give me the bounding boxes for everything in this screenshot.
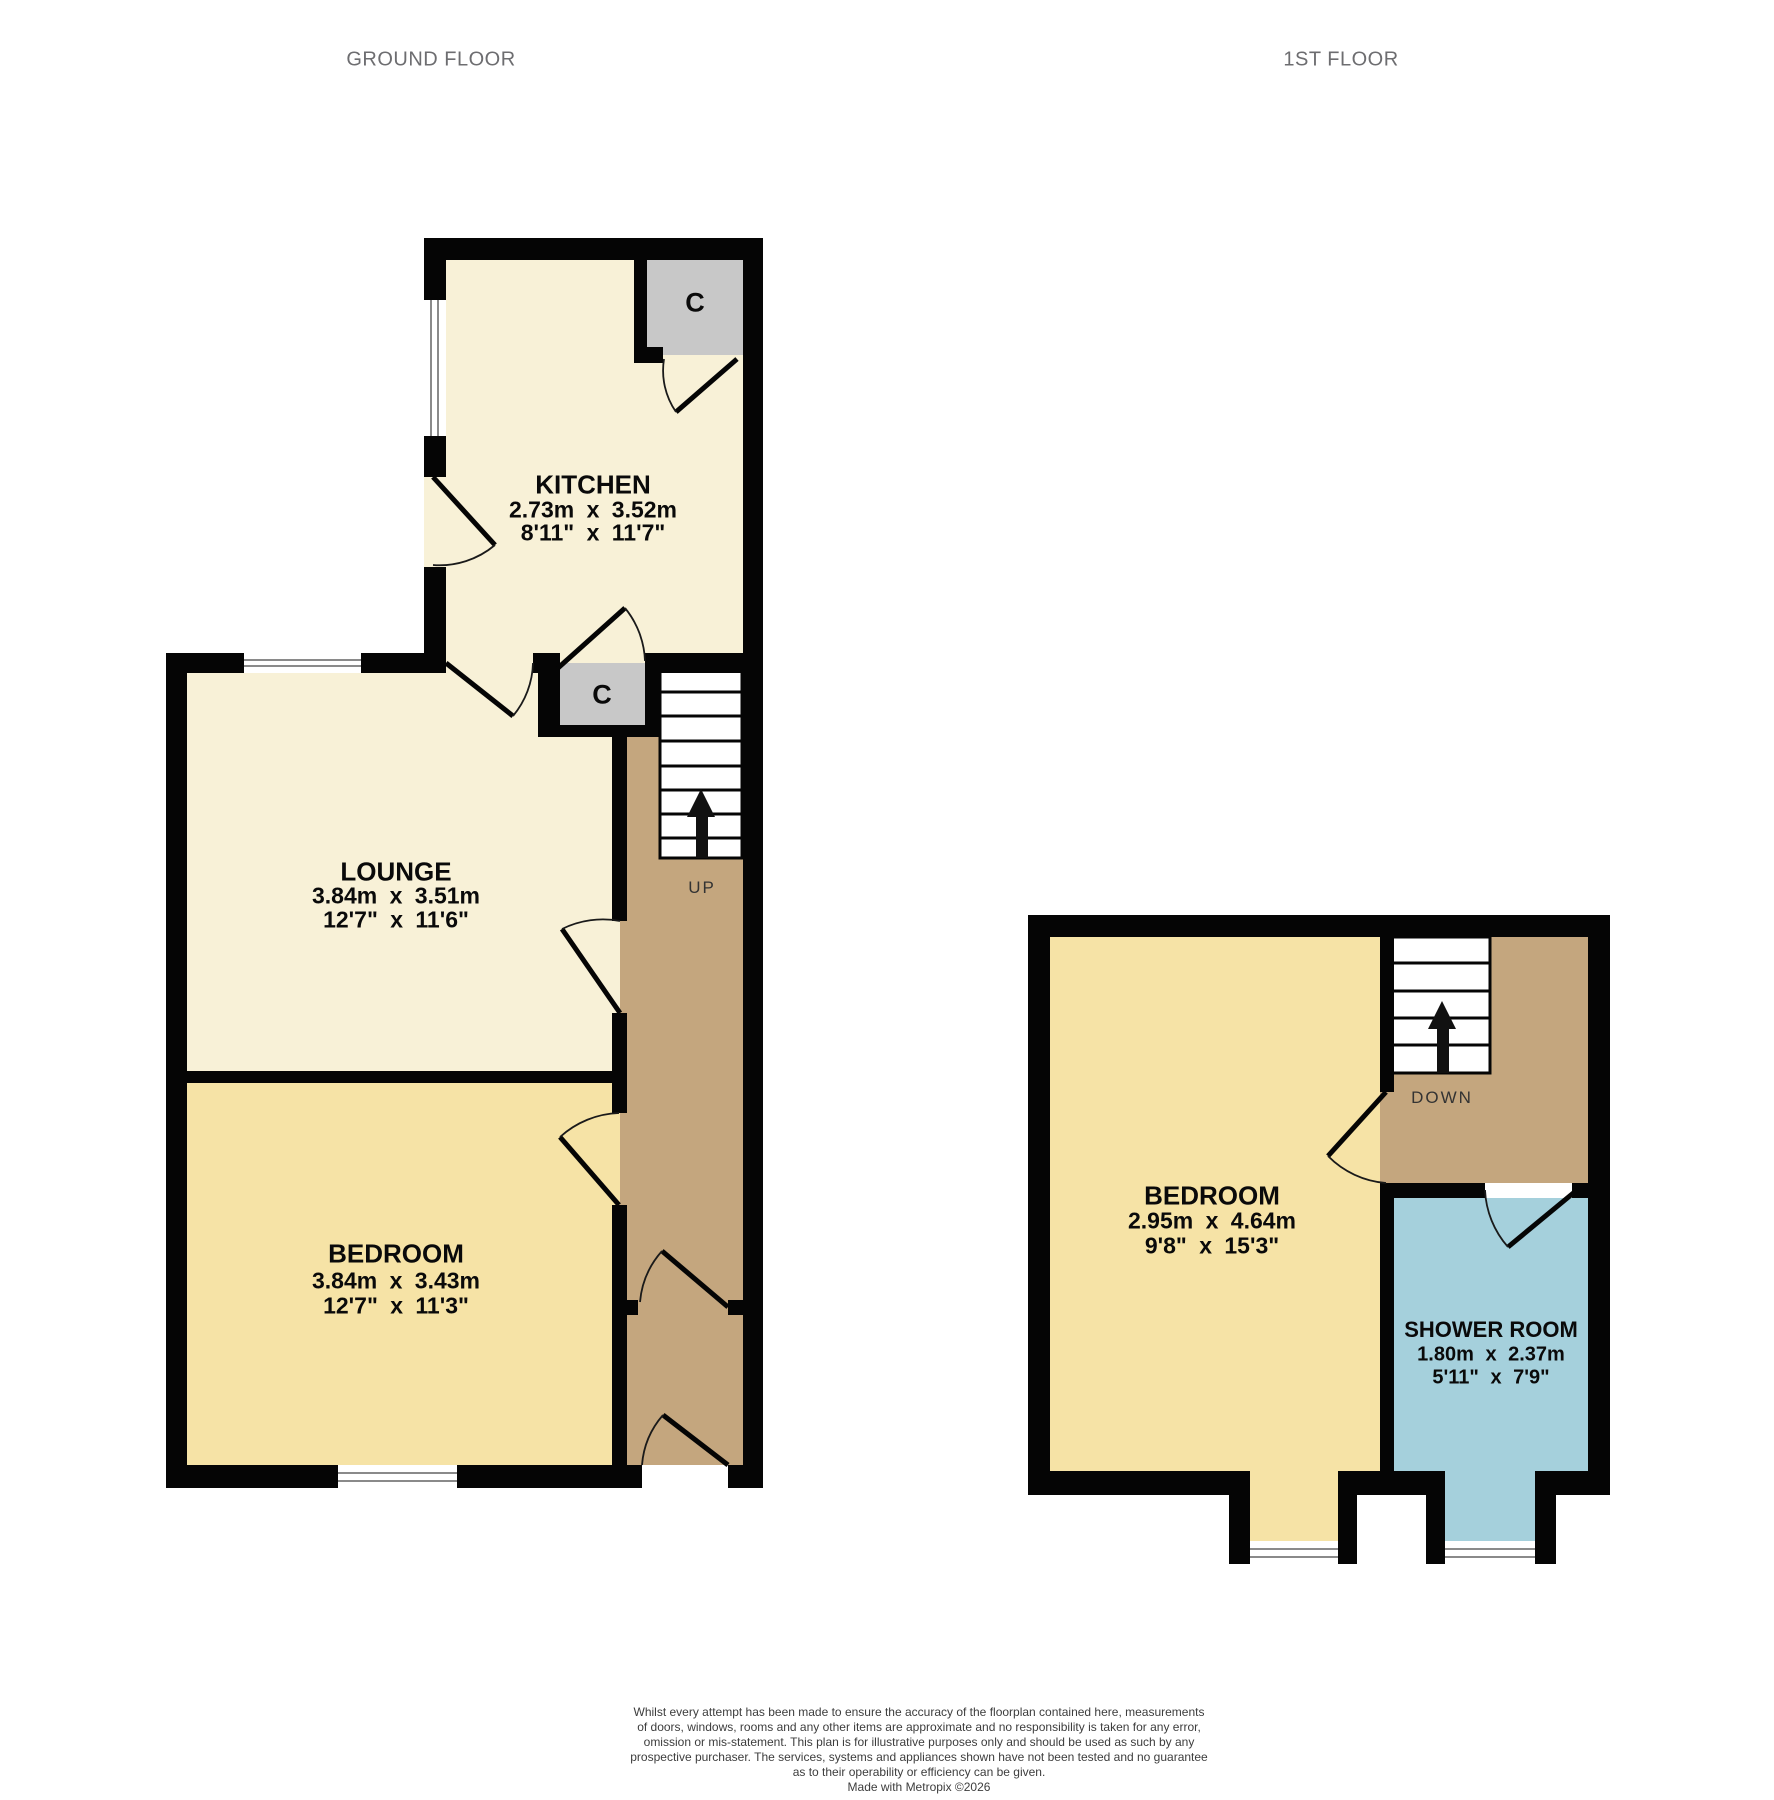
first-floor-plan <box>1028 915 1610 1564</box>
disclaimer-line: Whilst every attempt has been made to en… <box>634 1705 1205 1719</box>
disclaimer-credit: Made with Metropix ©2026 <box>848 1780 991 1794</box>
shower-bay-window <box>1445 1541 1535 1564</box>
stairs-up <box>660 670 742 858</box>
kitchen-window <box>424 300 446 436</box>
shower-room-dim-metric: 1.80m x 2.37m <box>1417 1344 1565 1367</box>
kitchen-lounge-door-gap <box>446 653 533 673</box>
bedroom-door-gap <box>612 1113 620 1205</box>
ground-bedroom-label: BEDROOM <box>328 1239 464 1270</box>
first-bedroom-bay <box>1250 1471 1338 1541</box>
ground-bedroom-window <box>338 1465 457 1488</box>
stairs-down <box>1392 937 1490 1073</box>
ground-bedroom-dim-imperial: 12'7" x 11'3" <box>323 1293 469 1320</box>
shower-room-dim-imperial: 5'11" x 7'9" <box>1432 1367 1549 1390</box>
first-floor-title: 1ST FLOOR <box>1283 49 1398 72</box>
disclaimer-line: of doors, windows, rooms and any other i… <box>637 1720 1201 1734</box>
lounge-door-gap-hall <box>620 921 627 1013</box>
closet-top-label: C <box>685 288 705 319</box>
shower-room-label: SHOWER ROOM <box>1404 1317 1578 1343</box>
disclaimer-line: omission or mis-statement. This plan is … <box>644 1735 1195 1749</box>
first-bedroom-bay-window <box>1250 1541 1338 1564</box>
disclaimer-line: prospective purchaser. The services, sys… <box>630 1750 1207 1764</box>
floorplan-drawing <box>0 0 1774 1800</box>
stairs-down-label: DOWN <box>1411 1088 1473 1108</box>
first-bedroom-dim-metric: 2.95m x 4.64m <box>1128 1208 1296 1235</box>
kitchen-dim-imperial: 8'11" x 11'7" <box>521 520 666 547</box>
floorplan-canvas: GROUND FLOOR 1ST FLOOR KITCHEN 2.73m x 3… <box>0 0 1774 1800</box>
lounge-window <box>244 653 361 673</box>
bedroom-door-gap-hall <box>620 1113 627 1205</box>
lounge-dim-metric: 3.84m x 3.51m <box>312 883 480 910</box>
front-door-threshold <box>642 1465 728 1488</box>
landing-door-gap <box>1380 1092 1392 1183</box>
shower-room-bay <box>1445 1471 1535 1541</box>
closet-mid-label: C <box>592 680 612 711</box>
disclaimer-line: as to their operability or efficiency ca… <box>793 1765 1046 1779</box>
lounge-dim-imperial: 12'7" x 11'6" <box>323 907 469 934</box>
first-bedroom-dim-imperial: 9'8" x 15'3" <box>1145 1233 1279 1260</box>
stairs-up-label: UP <box>688 878 716 898</box>
ground-bedroom-dim-metric: 3.84m x 3.43m <box>312 1268 480 1295</box>
ground-floor-title: GROUND FLOOR <box>346 49 515 72</box>
